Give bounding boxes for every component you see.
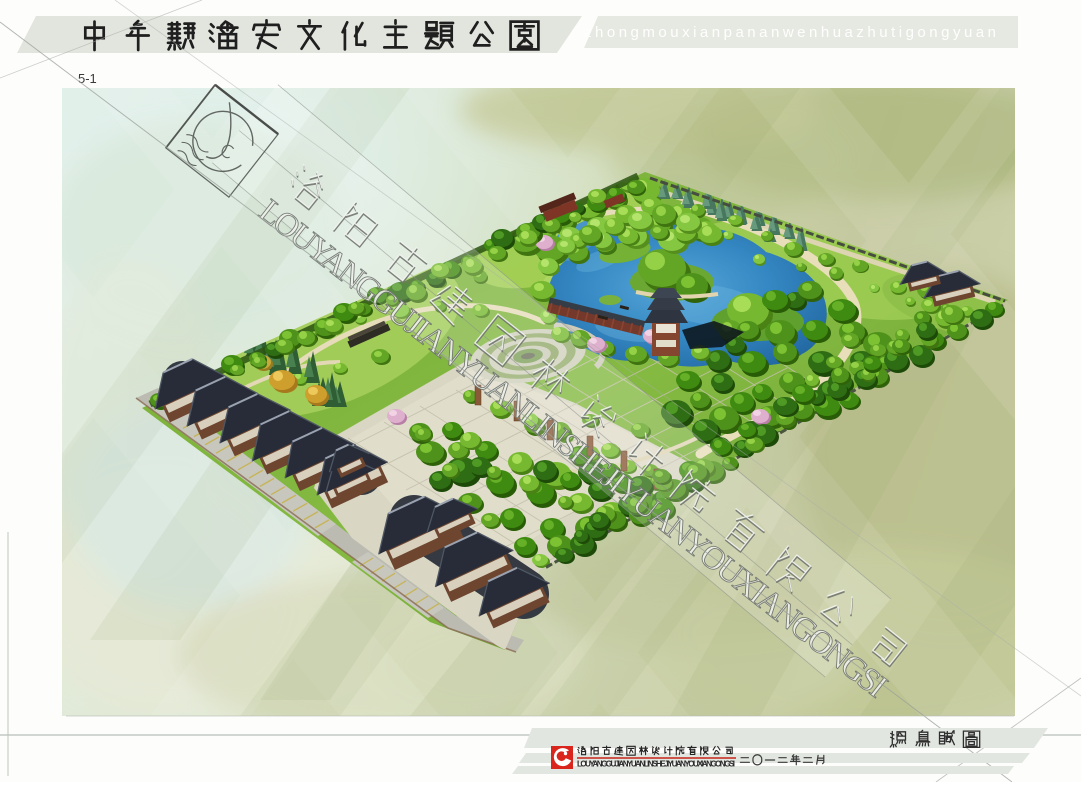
svg-text:LOUYANGGUJIANYUANLINSHEJIYUANY: LOUYANGGUJIANYUANLINSHEJIYUANYOUXIANGONG… — [577, 760, 735, 769]
svg-text:5-1: 5-1 — [78, 71, 97, 86]
svg-text:zhongmouxianpananwenhuazhutigo: zhongmouxianpananwenhuazhutigongyuan — [584, 24, 998, 41]
